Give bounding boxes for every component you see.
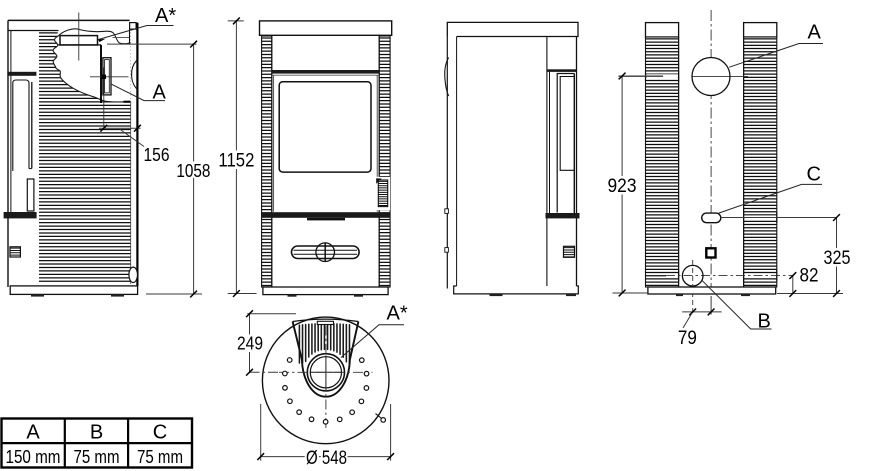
svg-text:1058: 1058 — [176, 161, 210, 181]
svg-text:1152: 1152 — [218, 151, 254, 172]
svg-text:A: A — [153, 81, 167, 103]
svg-text:150 mm: 150 mm — [6, 447, 61, 467]
svg-text:325: 325 — [824, 248, 851, 269]
svg-text:A*: A* — [387, 303, 408, 325]
svg-text:B: B — [758, 311, 771, 333]
svg-text:75 mm: 75 mm — [74, 447, 120, 467]
svg-text:Ø 548: Ø 548 — [306, 448, 347, 469]
svg-text:79: 79 — [678, 328, 697, 349]
svg-text:B: B — [90, 421, 103, 443]
svg-text:75 mm: 75 mm — [137, 447, 183, 467]
svg-text:A*: A* — [155, 5, 176, 27]
svg-text:A: A — [26, 421, 40, 443]
svg-text:156: 156 — [144, 145, 170, 165]
svg-text:249: 249 — [237, 333, 263, 353]
svg-text:923: 923 — [608, 176, 637, 197]
svg-text:A: A — [808, 21, 822, 43]
svg-text:C: C — [807, 163, 821, 185]
svg-text:C: C — [153, 421, 167, 443]
svg-text:82: 82 — [800, 266, 819, 287]
